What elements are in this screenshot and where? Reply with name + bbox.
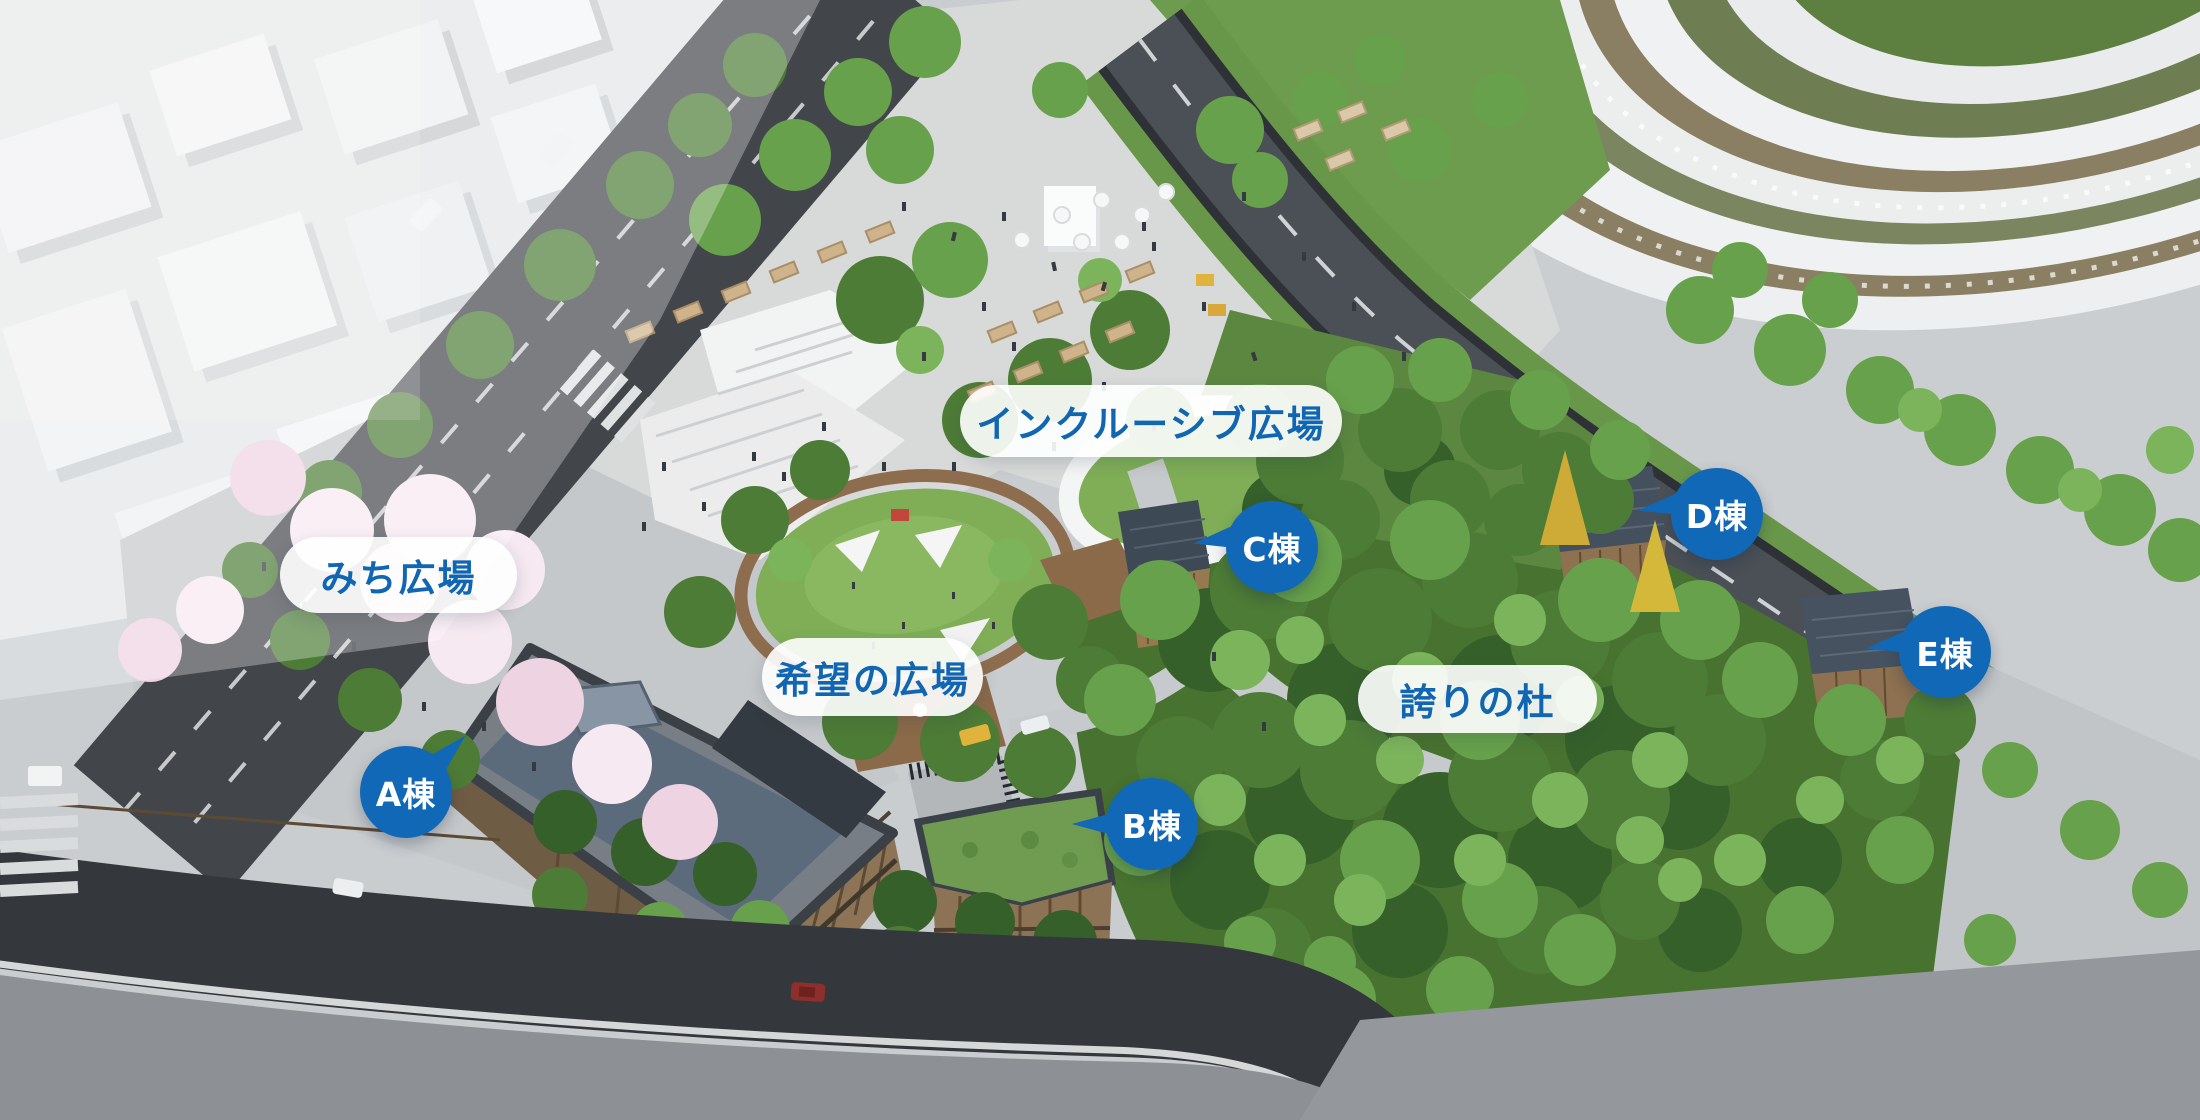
building-badge-text: A棟: [376, 768, 437, 816]
building-badge-b[interactable]: B棟: [1106, 778, 1198, 870]
area-label-hokori-forest[interactable]: 誇りの杜: [1358, 665, 1597, 733]
building-badge-text: D棟: [1686, 490, 1748, 538]
building-badge-text: E棟: [1916, 628, 1974, 676]
area-label-text: みち広場: [321, 548, 477, 602]
area-label-michi-plaza[interactable]: みち広場: [280, 537, 517, 613]
site-map-stage: インクルーシブ広場 みち広場 希望の広場 誇りの杜 A棟 B棟 C棟 D棟 E棟: [0, 0, 2200, 1120]
building-badge-d[interactable]: D棟: [1671, 468, 1763, 560]
building-badge-e[interactable]: E棟: [1899, 606, 1991, 698]
area-label-text: 誇りの杜: [1400, 672, 1556, 726]
building-badge-a[interactable]: A棟: [360, 746, 452, 838]
building-badge-c[interactable]: C棟: [1226, 501, 1318, 593]
building-badge-text: B棟: [1122, 800, 1182, 848]
area-label-kibou-plaza[interactable]: 希望の広場: [762, 638, 983, 716]
building-badge-text: C棟: [1242, 523, 1301, 571]
area-label-inclusive-plaza[interactable]: インクルーシブ広場: [960, 385, 1342, 457]
area-label-text: 希望の広場: [775, 650, 970, 704]
area-label-text: インクルーシブ広場: [976, 394, 1325, 448]
